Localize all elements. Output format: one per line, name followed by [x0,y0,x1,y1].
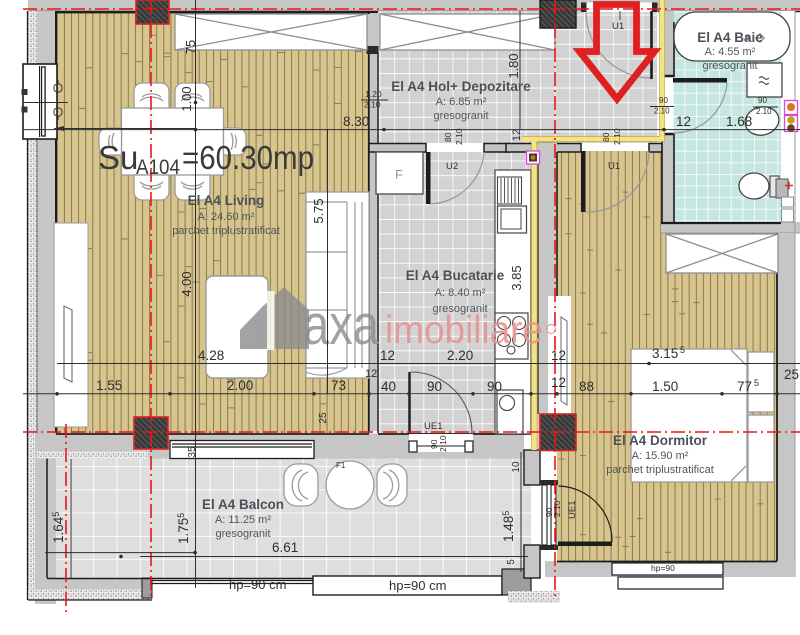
svg-text:3.15: 3.15 [652,346,678,361]
svg-text:8.30: 8.30 [343,114,369,129]
svg-text:77: 77 [737,379,752,394]
svg-text:90: 90 [659,96,668,105]
svg-text:5: 5 [754,378,759,388]
svg-text:F1: F1 [336,461,346,470]
svg-text:4.28: 4.28 [198,348,224,363]
svg-text:1.80: 1.80 [506,53,521,78]
svg-text:5.75: 5.75 [311,198,326,223]
svg-text:2.10: 2.10 [654,107,670,116]
svg-text:75: 75 [183,40,198,54]
svg-text:2.10: 2.10 [364,100,381,110]
svg-text:12: 12 [365,368,377,380]
svg-text:axa: axa [303,293,379,357]
svg-text:2.00: 2.00 [227,378,253,393]
svg-text:6.61: 6.61 [272,540,298,555]
svg-text:25: 25 [784,367,799,382]
svg-text:gresogranit: gresogranit [433,110,488,122]
svg-text:90: 90 [427,379,442,394]
svg-text:90: 90 [758,96,767,105]
svg-text:El A4 Hol+ Depozitare: El A4 Hol+ Depozitare [391,79,531,94]
svg-text:Su: Su [98,139,138,176]
svg-text:12: 12 [676,114,691,129]
svg-text:10: 10 [511,461,522,473]
svg-text:5: 5 [506,559,517,565]
svg-text:El A4 Dormitor: El A4 Dormitor [613,433,708,448]
svg-text:A: 6.85 m²: A: 6.85 m² [436,96,487,108]
svg-text:hp=90: hp=90 [651,563,675,573]
svg-text:F: F [395,167,403,182]
svg-text:UE1: UE1 [567,501,578,519]
svg-text:imobiliare: imobiliare [385,309,543,352]
svg-text:1.68: 1.68 [726,114,752,129]
svg-text:12: 12 [511,129,523,141]
svg-text:El A4 Balcon: El A4 Balcon [202,497,284,512]
svg-text:88: 88 [579,379,594,394]
svg-text:12: 12 [551,348,566,363]
svg-text:2.10: 2.10 [454,128,464,145]
svg-text:2.10: 2.10 [756,107,772,116]
svg-text:gresogranit: gresogranit [432,303,487,315]
svg-text:12: 12 [380,348,395,363]
svg-text:2.10: 2.10 [438,435,448,452]
svg-text:40: 40 [381,379,396,394]
svg-text:73: 73 [331,378,346,393]
svg-text:A: 11.25 m²: A: 11.25 m² [215,514,271,526]
svg-text:4.00: 4.00 [179,271,194,296]
svg-text:2.10: 2.10 [612,128,622,145]
svg-text:1.20: 1.20 [365,89,382,99]
svg-text:El A4 Living: El A4 Living [188,193,265,208]
svg-text:80: 80 [601,132,611,142]
svg-text:2.20: 2.20 [447,348,473,363]
svg-text:12: 12 [551,375,566,390]
svg-text:parchet triplustratificat: parchet triplustratificat [172,225,280,237]
svg-text:=60.30mp: =60.30mp [182,139,314,176]
svg-text:1.50: 1.50 [652,379,678,394]
svg-text:El A4 Bucatarie: El A4 Bucatarie [406,268,505,283]
svg-text:U1: U1 [612,21,624,32]
svg-text:3.85: 3.85 [509,265,524,290]
svg-text:5: 5 [680,345,685,355]
svg-text:1.55: 1.55 [96,378,122,393]
svg-text:UE1: UE1 [424,421,442,432]
svg-text:gresogranit: gresogranit [702,60,757,72]
svg-text:35: 35 [187,446,198,458]
svg-text:El A4 Baie: El A4 Baie [697,30,763,45]
svg-text:90: 90 [487,379,502,394]
svg-text:25: 25 [318,412,329,424]
svg-text:A: 24.60 m²: A: 24.60 m² [198,211,255,223]
svg-text:A104: A104 [136,156,180,179]
svg-text:parchet triplustratificat: parchet triplustratificat [606,464,714,476]
svg-text:U1: U1 [608,161,620,172]
svg-text:hp=90 cm: hp=90 cm [389,578,446,593]
svg-text:gresogranit: gresogranit [215,528,270,540]
svg-text:U2: U2 [446,161,458,172]
svg-text:1.00: 1.00 [179,86,194,111]
svg-text:A: 4.55 m²: A: 4.55 m² [705,46,756,58]
svg-text:2.10: 2.10 [552,500,562,517]
svg-text:80: 80 [443,132,453,142]
svg-text:A: 8.40 m²: A: 8.40 m² [435,287,486,299]
svg-text:hp=90 cm: hp=90 cm [229,577,286,592]
svg-text:A: 15.90 m²: A: 15.90 m² [632,450,689,462]
